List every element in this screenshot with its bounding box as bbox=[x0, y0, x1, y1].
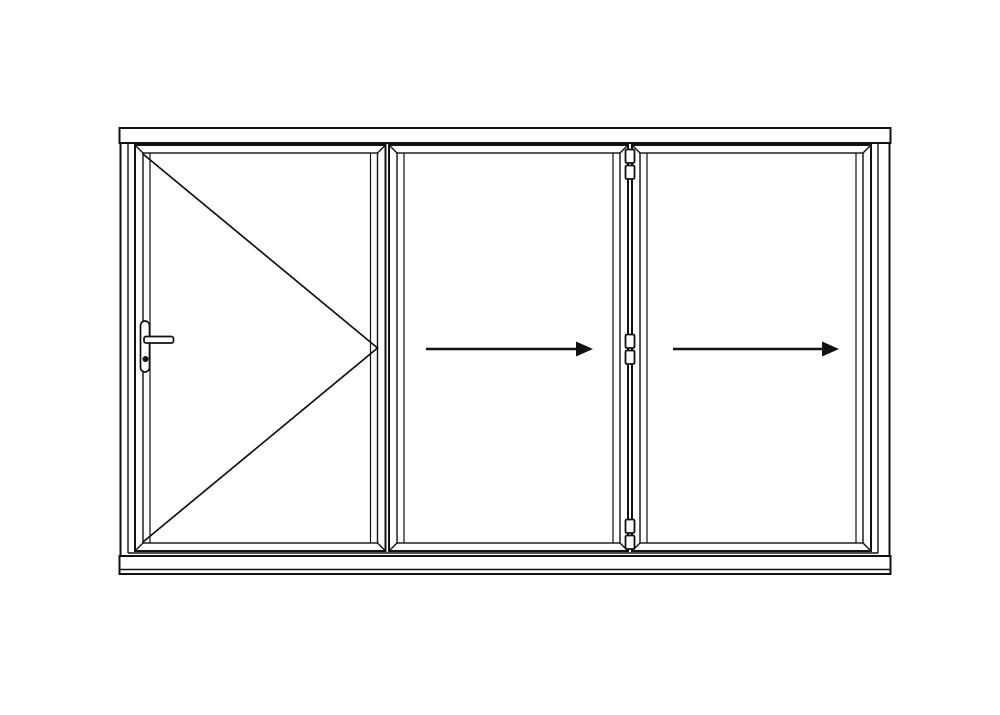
hinge-knuckle bbox=[626, 351, 635, 365]
hinge-knuckle bbox=[626, 166, 635, 180]
frame-head bbox=[120, 128, 891, 143]
hinge-knuckle bbox=[626, 520, 635, 534]
handle-backplate bbox=[141, 321, 150, 372]
handle-lever bbox=[144, 337, 174, 344]
hinge-knuckle bbox=[626, 150, 635, 164]
hinge-knuckle bbox=[626, 536, 635, 550]
frame-sill bbox=[120, 556, 891, 574]
hinge-knuckle bbox=[626, 335, 635, 349]
bifold-door-diagram bbox=[0, 0, 1000, 715]
handle-keyhole bbox=[143, 356, 149, 362]
door-elevation-drawing bbox=[0, 0, 1000, 715]
